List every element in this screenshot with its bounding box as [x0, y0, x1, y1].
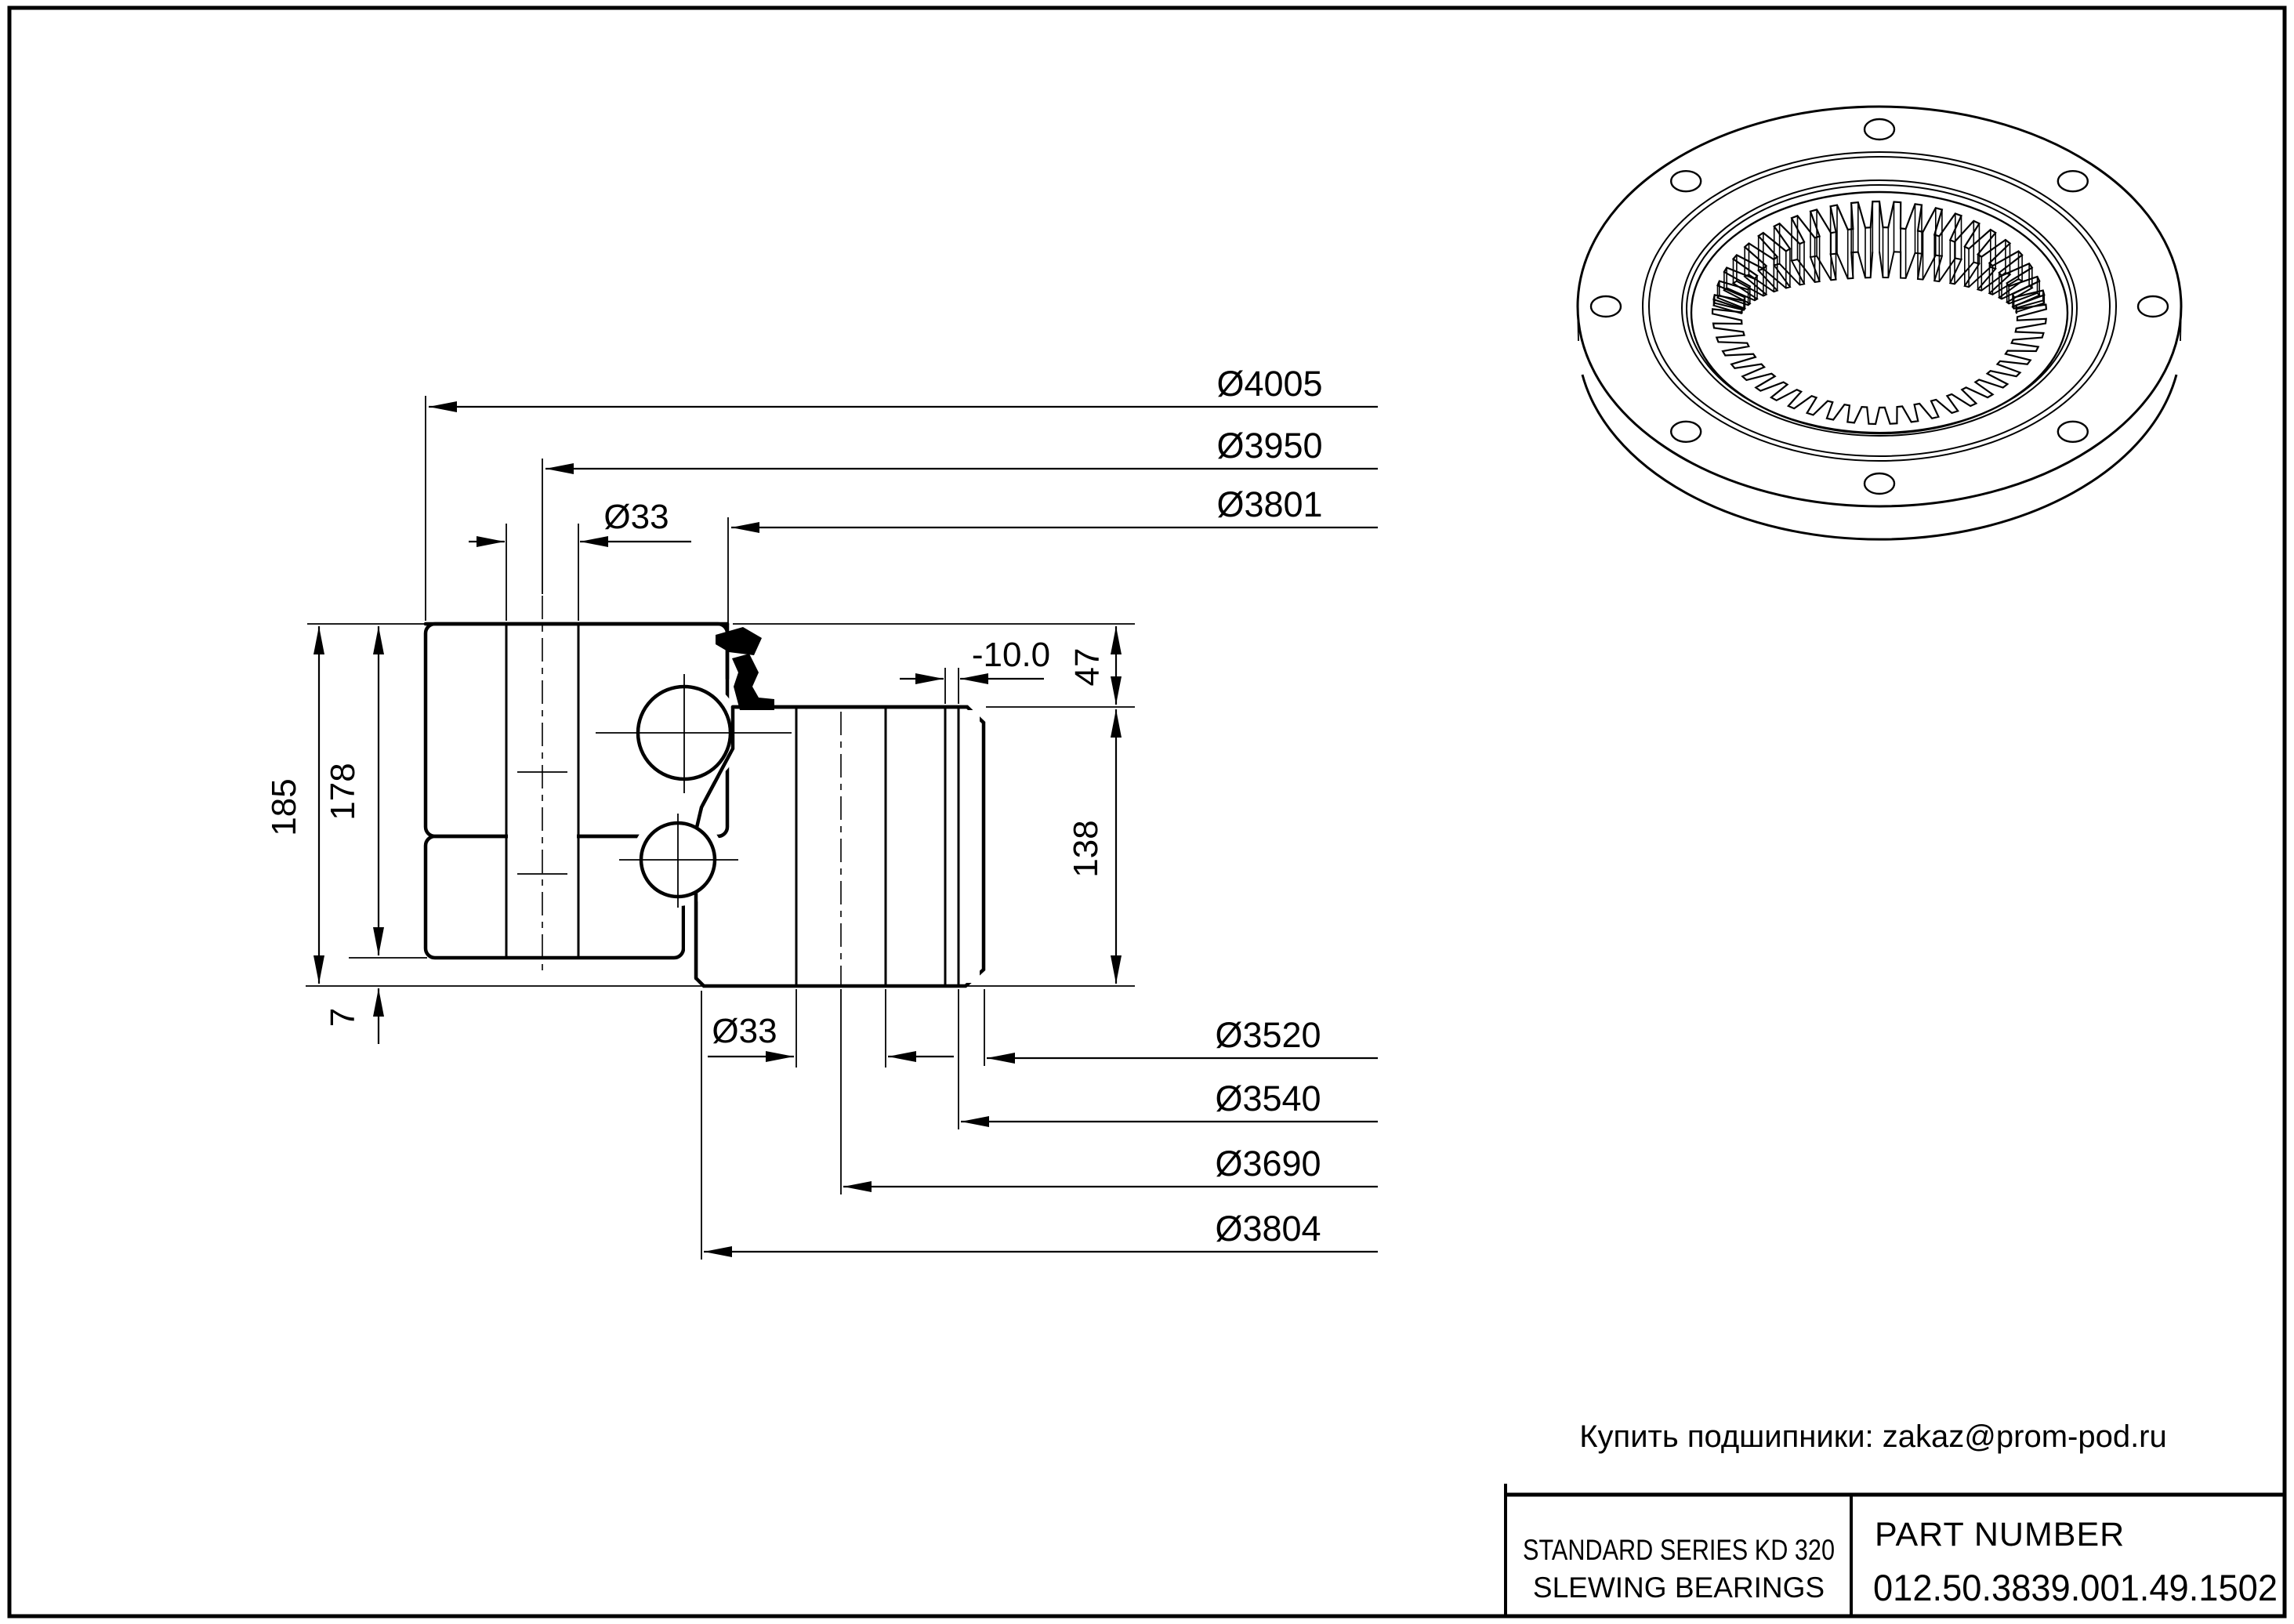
part-number-label: PART NUMBER [1875, 1516, 2125, 1553]
series-title-line2: SLEWING BEARINGS [1533, 1571, 1825, 1604]
dim-inner-bolt-hole-label: Ø33 [712, 1012, 777, 1050]
part-number-value: 012.50.3839.001.49.1502 [1873, 1567, 2278, 1608]
dim-bolt-circle-inner-label: Ø3690 [1215, 1144, 1321, 1184]
dim-height-7-label: 7 [324, 1008, 362, 1027]
drawing-sheet: Ø4005 Ø3950 Ø3801 Ø33 -10.0 47 138 185 1… [0, 0, 2294, 1624]
dim-height-178-label: 178 [324, 763, 362, 820]
bolt-hole [1865, 119, 1894, 140]
dim-height-138-label: 138 [1067, 820, 1105, 877]
dim-height-185-label: 185 [265, 778, 303, 836]
dim-seal-diameter-label: Ø3801 [1216, 484, 1322, 524]
bolt-hole [1671, 171, 1701, 191]
dim-gear-offset-label: -10.0 [972, 636, 1050, 674]
contact-text: Купить подшипники: zakaz@prom-pod.ru [1579, 1419, 2167, 1454]
drawing-canvas: Ø4005 Ø3950 Ø3801 Ø33 -10.0 47 138 185 1… [0, 0, 2294, 1624]
bolt-hole [2138, 296, 2168, 317]
gear-tooth-zone [930, 710, 980, 983]
bolt-hole [2058, 171, 2088, 191]
series-title-line1: STANDARD SERIES KD 320 [1523, 1534, 1835, 1566]
dim-outer-diameter-label: Ø4005 [1216, 364, 1322, 404]
dim-bolt-circle-outer-label: Ø3950 [1216, 426, 1322, 466]
bolt-hole [2058, 422, 2088, 442]
bolt-hole [1865, 473, 1894, 494]
bolt-hole [1671, 422, 1701, 442]
dim-inner-ring-od-label: Ø3804 [1215, 1209, 1321, 1249]
bolt-hole [1591, 296, 1621, 317]
dim-bore-diameter-label: Ø3520 [1215, 1015, 1321, 1055]
dim-outer-bolt-hole-label: Ø33 [603, 498, 669, 536]
dim-height-47-label: 47 [1068, 648, 1107, 687]
dim-root-diameter-label: Ø3540 [1215, 1078, 1321, 1118]
